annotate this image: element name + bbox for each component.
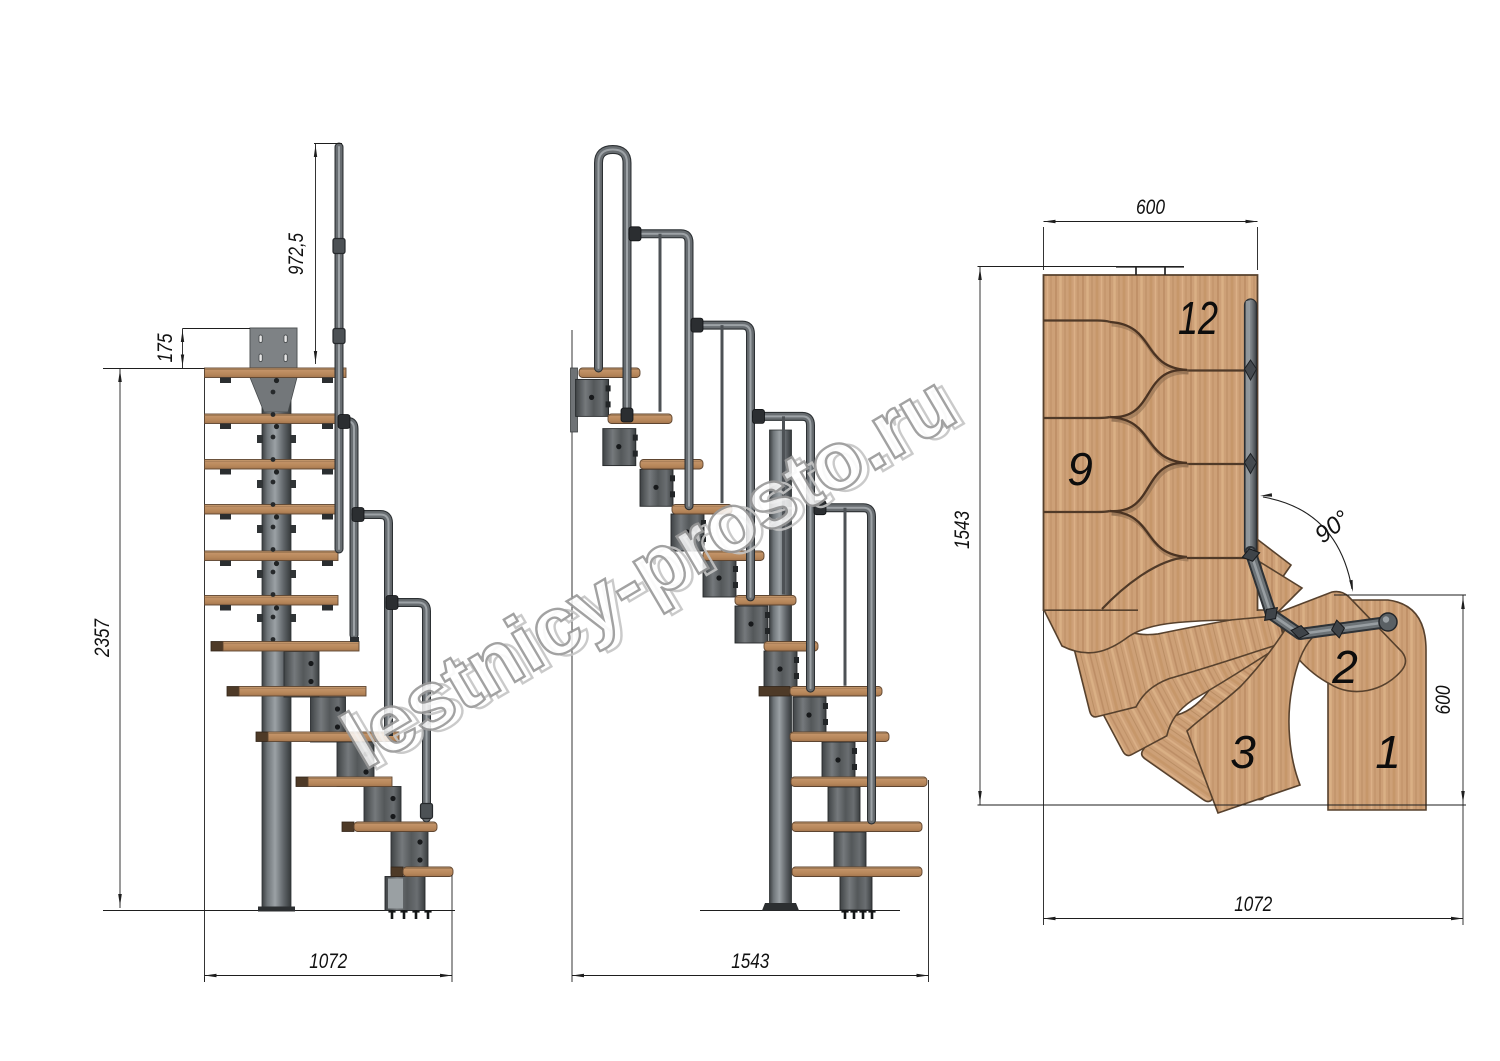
svg-text:2357: 2357 <box>91 618 114 658</box>
svg-text:1: 1 <box>1375 726 1401 778</box>
svg-text:600: 600 <box>1432 685 1455 714</box>
svg-text:9: 9 <box>1067 443 1093 495</box>
svg-text:3: 3 <box>1230 726 1256 778</box>
svg-text:12: 12 <box>1178 292 1218 344</box>
svg-text:972,5: 972,5 <box>285 233 308 275</box>
svg-text:1543: 1543 <box>951 511 974 549</box>
svg-text:2: 2 <box>1331 641 1358 693</box>
svg-text:1543: 1543 <box>731 950 769 973</box>
svg-text:600: 600 <box>1136 196 1165 219</box>
svg-text:1072: 1072 <box>309 950 347 973</box>
svg-text:1072: 1072 <box>1234 893 1272 916</box>
svg-text:175: 175 <box>154 333 177 362</box>
